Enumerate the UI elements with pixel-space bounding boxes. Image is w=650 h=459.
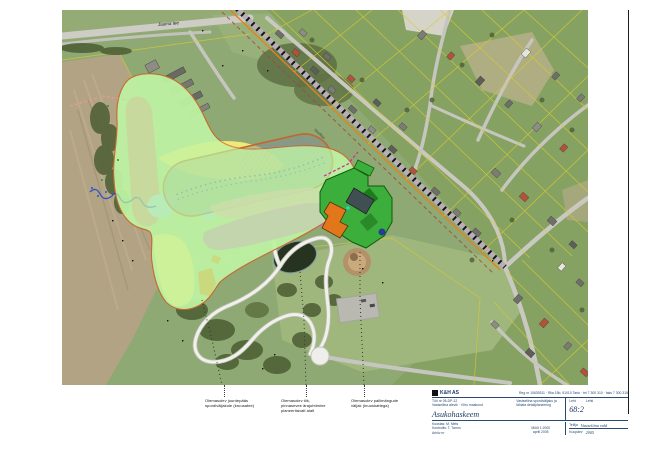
map-note-3: Olemasolev pallimängude väljak (kruuskat…: [351, 398, 419, 408]
project-name-line2: lähiala detailplaneering: [516, 403, 565, 407]
note-line: planeeritavalt alalt: [281, 408, 339, 413]
sheet-title: Asukohaskeem: [432, 410, 516, 419]
client-label: Tellija: [569, 423, 577, 428]
leader-stub-3: [364, 385, 365, 397]
note-line: spordiväljakule (kruusatee): [205, 403, 265, 408]
client-value: Vastseliina vald: [581, 423, 607, 428]
company-name: K&H AS: [440, 390, 459, 396]
company-contact: Reg nr 10639311 · Riia 15b, 51010 Tartu …: [519, 391, 628, 395]
date-value: 2005: [586, 430, 594, 435]
page-border-right: [628, 10, 629, 414]
map-note-1: Olemasolev juurdepääs spordiväljakule (k…: [205, 398, 265, 408]
sheet-count-label: Lehti: [586, 399, 593, 403]
orthophoto-plan: Jaama tee raudtee: [62, 10, 588, 385]
project-location: Vastseliina alevik · Võru maakond: [432, 403, 516, 407]
map-note-2: Olemasolev tiik, pinnasevee ärajuhtimine…: [281, 398, 339, 414]
title-block: K&H AS Reg nr 10639311 · Riia 15b, 51010…: [432, 388, 628, 435]
date-line: aprill 2005: [516, 430, 565, 434]
archive-line: Arhiiv nr: [432, 431, 516, 435]
company-logo: [432, 390, 438, 396]
map-canvas: Jaama tee raudtee: [62, 10, 588, 385]
note-line: väljak (kruuskattega): [351, 403, 419, 408]
sheet-number: 68:2: [569, 405, 628, 414]
leader-stub-2: [306, 385, 307, 397]
sheet-label: Leht: [569, 399, 576, 403]
document-sheet: Jaama tee raudtee Olemasolev juurdepääs …: [0, 0, 650, 459]
leader-stub-1: [224, 385, 225, 397]
date-label: Kuupäev: [569, 430, 582, 435]
